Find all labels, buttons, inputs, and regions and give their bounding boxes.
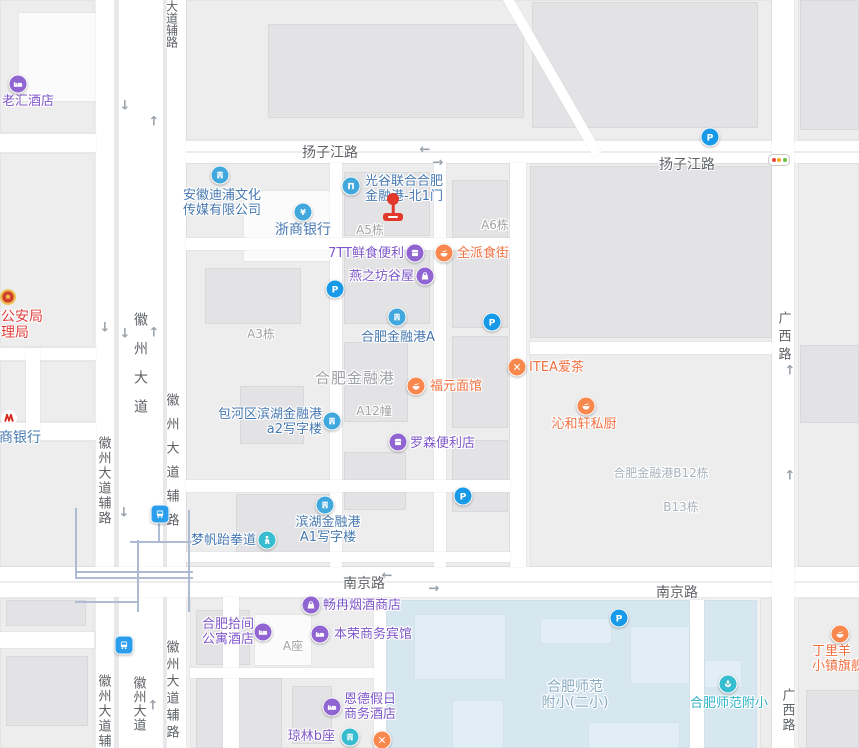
gate-marker-bar[interactable] [383, 213, 403, 221]
poi-label-line[interactable]: 丁里羊 [812, 644, 859, 659]
building-icon[interactable] [388, 308, 407, 327]
poi-label-line[interactable]: 公寓酒店 [202, 632, 254, 647]
poi-label-line[interactable]: 全派食街 [457, 246, 509, 261]
area-label: 合肥金融港B12栋 [613, 464, 709, 481]
poi-label-line[interactable]: A1写字楼 [295, 530, 360, 545]
road-label: 扬子江路 [659, 154, 715, 174]
area-label: A3栋 [247, 325, 275, 342]
poi-label-line[interactable]: 管理局 [0, 325, 43, 341]
road-direction-arrow: ← [420, 143, 431, 158]
road-label: 徽州大道 [130, 312, 150, 428]
road-direction-arrow: ↓ [120, 99, 131, 114]
gate-marker-dot[interactable] [387, 193, 399, 205]
store-icon[interactable] [406, 244, 425, 263]
poi-label-line[interactable]: 福元面馆 [430, 379, 482, 394]
poi-label-line[interactable]: 7TT鲜食便利 [328, 246, 404, 261]
poi-label-line[interactable]: 市公安局 [0, 309, 43, 325]
overlay-layer: 扬子江路扬子江路南京路南京路大道辅路徽州大道徽州大道辅路徽州大道辅路广西路广西路… [0, 0, 859, 748]
poi-label-line[interactable]: 燕之坊谷屋 [349, 269, 414, 284]
poi-label-line[interactable]: 老汇酒店 [2, 94, 54, 109]
road-direction-arrow: ↑ [785, 469, 796, 484]
poi-label-line[interactable]: 浙商银行 [275, 222, 331, 238]
poi-label-7tt-fresh-food[interactable]: 7TT鲜食便利 [328, 246, 404, 261]
poi-label-zheshang-bank[interactable]: 浙商银行 [275, 222, 331, 238]
svg-text:¥: ¥ [300, 207, 306, 217]
area-label: A6栋 [481, 216, 509, 233]
area-label: B13栋 [663, 498, 699, 515]
bus-stop-icon[interactable] [115, 636, 134, 655]
poi-label-hefei-shijian-apartment-hotel[interactable]: 合肥拾间公寓酒店 [202, 617, 254, 647]
poi-label-line[interactable]: 商银行 [0, 430, 41, 446]
store-icon[interactable] [389, 433, 408, 452]
road-direction-arrow: → [433, 156, 444, 171]
poi-label-line[interactable]: 沁和轩私厨 [551, 417, 616, 432]
svg-text:P: P [616, 613, 623, 623]
road-label: 南京路 [656, 582, 698, 602]
area-label: 合肥金融港 [315, 367, 395, 388]
poi-label-lawson-store[interactable]: 罗森便利店 [410, 436, 475, 451]
road-direction-arrow: ↓ [100, 321, 111, 336]
parking-icon[interactable]: P [483, 313, 502, 332]
road-label: 徽州大道 [129, 676, 148, 732]
poi-label-line[interactable]: 合肥师范附小 [690, 696, 768, 711]
bowl-icon[interactable] [831, 625, 850, 644]
road-direction-arrow: ↓ [119, 506, 130, 521]
poi-label-line[interactable]: 合肥拾间 [202, 617, 254, 632]
svg-text:P: P [489, 317, 496, 327]
poi-label-hefei-shifan-fuxiao[interactable]: 合肥师范附小 [690, 696, 768, 711]
road-direction-arrow: ↑ [149, 115, 160, 130]
road-direction-arrow: ↑ [148, 699, 159, 714]
poi-label-quanpai-food-street[interactable]: 全派食街 [457, 246, 509, 261]
poi-label-line[interactable]: 本荣商务宾馆 [334, 627, 412, 642]
building-icon[interactable] [323, 412, 342, 431]
poi-label-fuyuan-noodle[interactable]: 福元面馆 [430, 379, 482, 394]
poi-label-line[interactable]: 金融港-北1门 [365, 189, 443, 204]
poi-label-line[interactable]: 安徽迪浦文化 [183, 188, 261, 203]
leaf-icon[interactable] [719, 675, 738, 694]
area-label: A5栋 [356, 221, 384, 238]
road-label: 徽州大道辅路 [94, 436, 113, 526]
emblem-icon[interactable] [0, 288, 18, 307]
road-direction-arrow: → [429, 582, 440, 597]
road-direction-arrow: ↑ [149, 326, 160, 341]
svg-text:P: P [332, 284, 339, 294]
poi-label-itea-tea[interactable]: ITEA爱茶 [529, 360, 584, 375]
poi-label-line[interactable]: 小镇旗舰 [812, 659, 859, 674]
building-icon[interactable] [316, 496, 335, 515]
forkknife-icon[interactable] [373, 731, 392, 748]
bowl-icon[interactable] [435, 244, 454, 263]
bowl-icon[interactable] [407, 377, 426, 396]
mlogo-icon[interactable] [0, 409, 19, 428]
poi-label-hefei-jinronggang-a[interactable]: 合肥金融港A [361, 330, 435, 345]
yen-icon[interactable]: ¥ [294, 203, 313, 222]
bus-stop-icon[interactable] [151, 505, 170, 524]
svg-text:P: P [707, 132, 714, 142]
poi-label-laohui-hotel[interactable]: 老汇酒店 [2, 94, 54, 109]
person-icon[interactable] [258, 531, 277, 550]
poi-label-guanggu-north-gate-1[interactable]: 光谷联合合肥金融港-北1门 [365, 174, 443, 204]
area-label: A12幢 [356, 402, 391, 419]
parking-icon[interactable]: P [326, 280, 345, 299]
poi-label-line[interactable]: 附小(二小) [542, 695, 609, 711]
parking-icon[interactable]: P [610, 609, 629, 628]
poi-label-ende-holiday-hotel[interactable]: 恩德假日商务酒店 [344, 692, 396, 722]
poi-label-line[interactable]: 滨湖金融港 [295, 515, 360, 530]
poi-label-line[interactable]: ITEA爱茶 [529, 360, 584, 375]
road-label: 广西路 [774, 311, 793, 365]
road-label: 大道辅路 [164, 0, 181, 48]
traffic-light-icon [768, 154, 790, 166]
poi-label-line[interactable]: 恩德假日 [344, 692, 396, 707]
poi-label-dingliyang-flagship[interactable]: 丁里羊小镇旗舰 [812, 644, 859, 674]
building-icon[interactable] [341, 728, 360, 747]
building-icon[interactable] [211, 166, 230, 185]
poi-label-line[interactable]: 罗森便利店 [410, 436, 475, 451]
road-label: 南京路 [343, 573, 385, 593]
bag-icon[interactable] [302, 596, 321, 615]
poi-label-line[interactable]: 梦帆跆拳道 [191, 533, 256, 548]
poi-label-zhaoshang-bank[interactable]: 商银行 [0, 430, 41, 446]
poi-label-a2-office-tower[interactable]: 包河区滨湖金融港a2写字楼 [218, 407, 322, 437]
parking-icon[interactable]: P [701, 128, 720, 147]
poi-label-line[interactable]: 传媒有限公司 [183, 203, 261, 218]
svg-text:P: P [460, 491, 467, 501]
parking-icon[interactable]: P [454, 487, 473, 506]
poi-label-anhui-dipu-media[interactable]: 安徽迪浦文化传媒有限公司 [183, 188, 261, 218]
bag-icon[interactable] [416, 267, 435, 286]
poi-label-qinhexuan-kitchen[interactable]: 沁和轩私厨 [551, 417, 616, 432]
poi-label-police-bureau[interactable]: 市公安局管理局 [0, 309, 43, 341]
poi-label-line[interactable]: 畅冉烟酒商店 [323, 598, 401, 613]
road-label: 广西路 [778, 688, 797, 733]
road-label: 扬子江路 [302, 142, 358, 162]
poi-label-shifan-fuxiao-ersiao-area[interactable]: 合肥师范附小(二小) [542, 679, 609, 711]
poi-label-line[interactable]: 商务酒店 [344, 707, 396, 722]
bed-icon[interactable] [254, 623, 273, 642]
forkknife-icon[interactable] [508, 358, 527, 377]
poi-label-line[interactable]: 琼林b座 [288, 729, 335, 744]
road-label: 徽州大道辅路 [162, 640, 181, 742]
road-direction-arrow: ↓ [120, 327, 131, 342]
bed-icon[interactable] [323, 698, 342, 717]
poi-label-changran-tobacco-shop[interactable]: 畅冉烟酒商店 [323, 598, 401, 613]
poi-label-a1-office-tower[interactable]: 滨湖金融港A1写字楼 [295, 515, 360, 545]
poi-label-line[interactable]: 光谷联合合肥 [365, 174, 443, 189]
bowl-icon[interactable] [577, 397, 596, 416]
road-direction-arrow: ↑ [785, 364, 796, 379]
bed-icon[interactable] [9, 75, 28, 94]
map-canvas[interactable]: 扬子江路扬子江路南京路南京路大道辅路徽州大道徽州大道辅路徽州大道辅路广西路广西路… [0, 0, 859, 748]
poi-label-line[interactable]: 合肥师范 [542, 679, 609, 695]
area-label: A座 [283, 637, 303, 654]
poi-label-line[interactable]: 合肥金融港A [361, 330, 435, 345]
road-label: 徽州大道辅路 [94, 674, 113, 748]
door-icon[interactable] [342, 177, 361, 196]
poi-label-qionglin-block-b[interactable]: 琼林b座 [288, 729, 335, 744]
poi-label-mengfan-taekwondo[interactable]: 梦帆跆拳道 [191, 533, 256, 548]
bed-icon[interactable] [311, 625, 330, 644]
poi-label-benrong-business-hotel[interactable]: 本荣商务宾馆 [334, 627, 412, 642]
poi-label-line[interactable]: a2写字楼 [218, 422, 322, 437]
poi-label-yanzhifang-guwu[interactable]: 燕之坊谷屋 [349, 269, 414, 284]
poi-label-line[interactable]: 包河区滨湖金融港 [218, 407, 322, 422]
